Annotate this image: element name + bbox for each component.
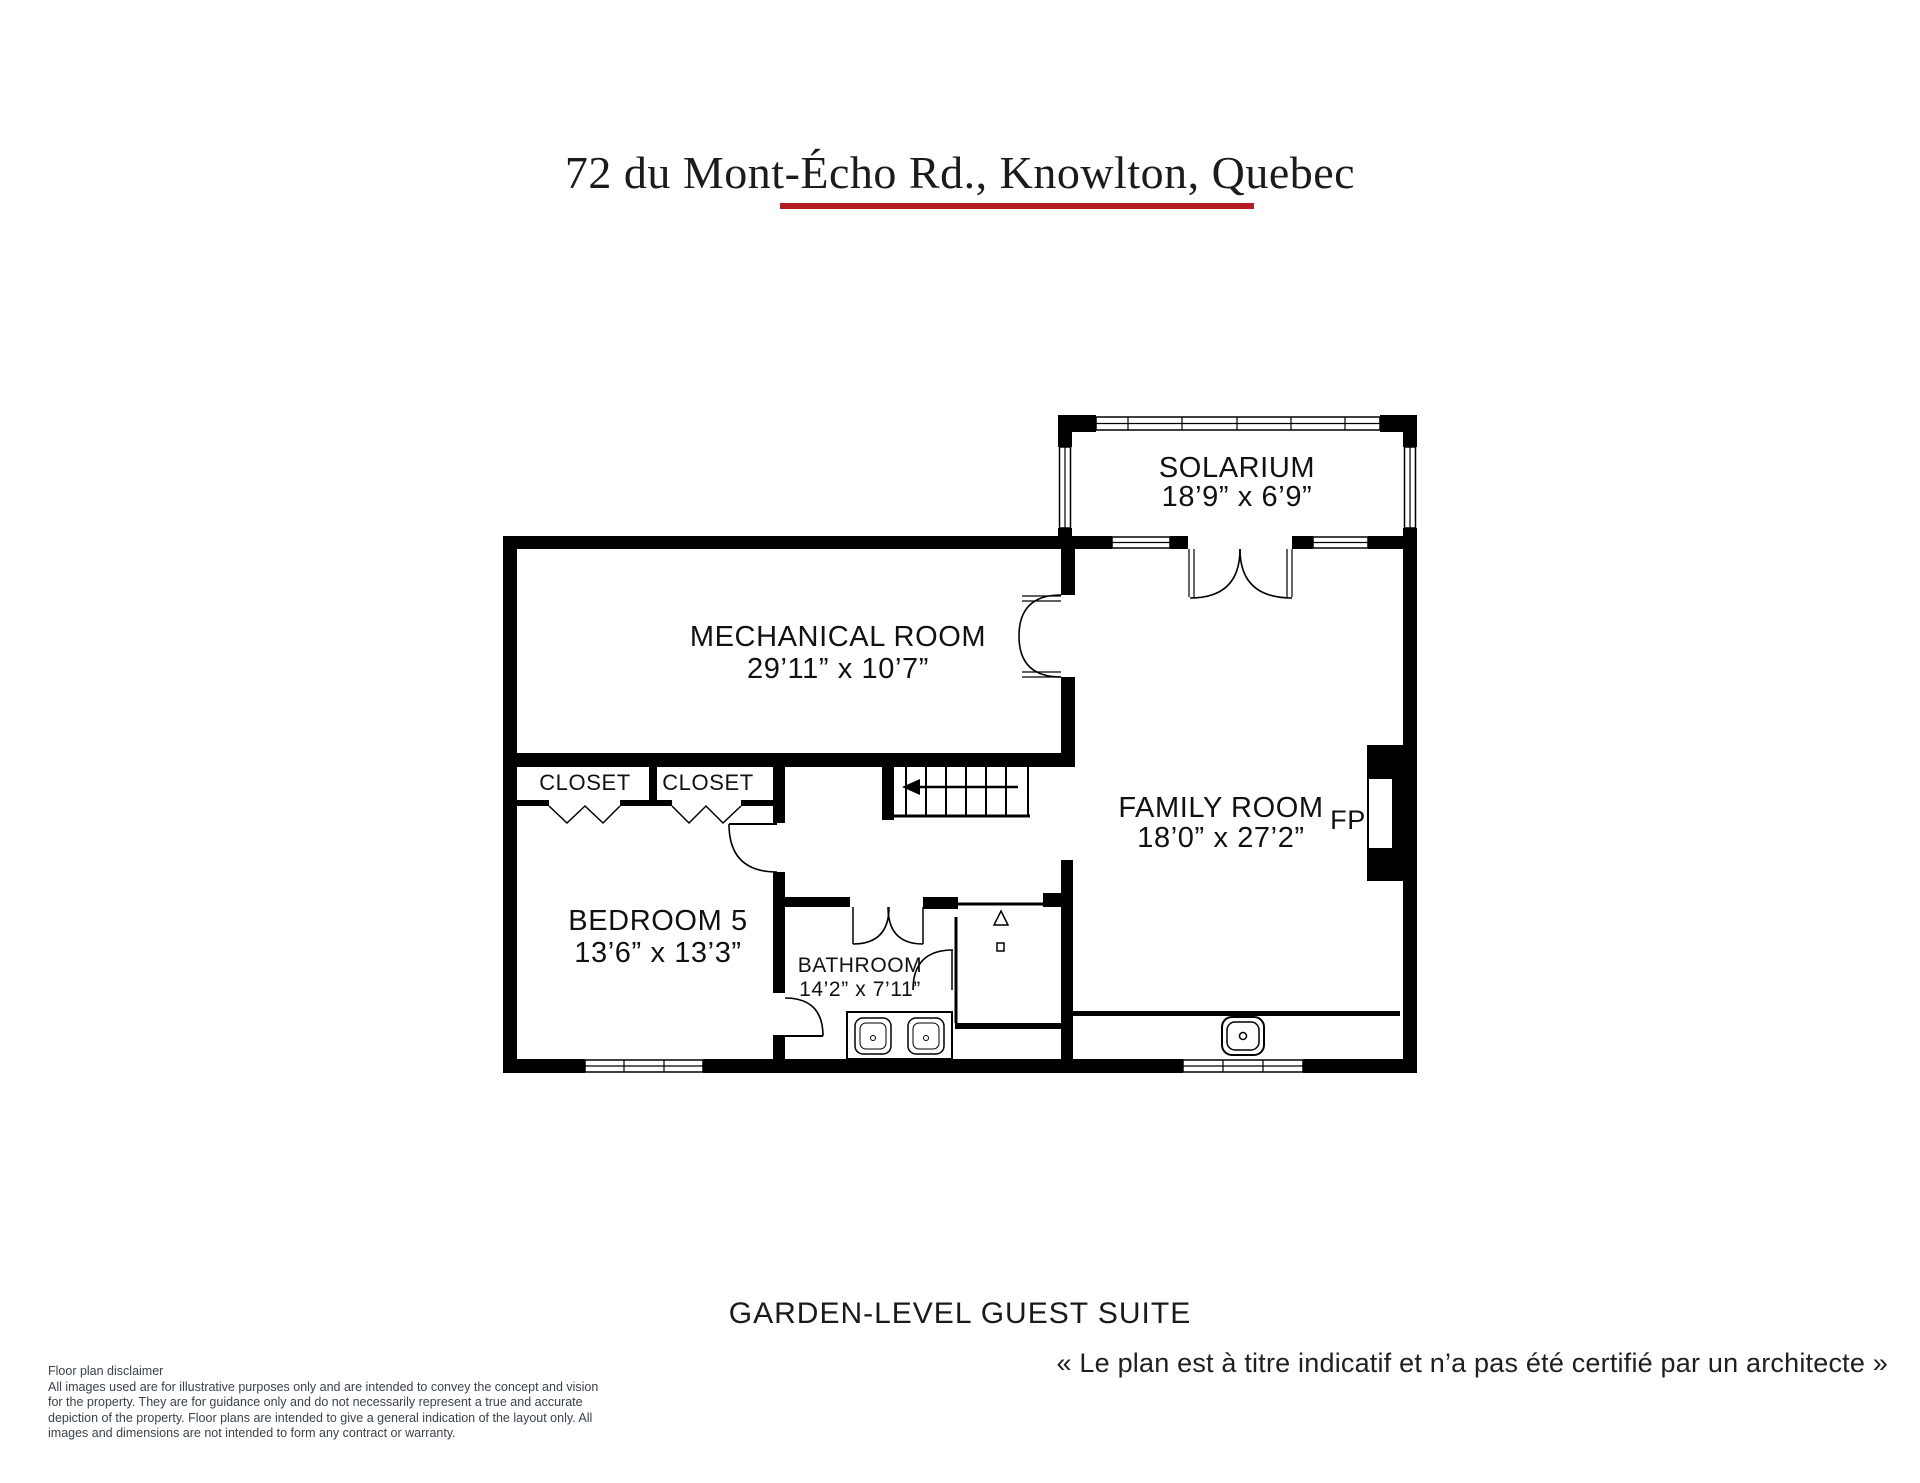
bathroom-vanity <box>847 1012 952 1059</box>
disclaimer-heading: Floor plan disclaimer <box>48 1364 598 1380</box>
room-label-closet-2: CLOSET <box>662 770 754 795</box>
floorplan-drawing: SOLARIUM 18’9” x 6’9” MECHANICAL ROOM 29… <box>0 0 1920 1483</box>
room-label-solarium: SOLARIUM <box>1159 452 1315 484</box>
room-dims-mechanical-room: 29’11” x 10’7” <box>747 653 929 685</box>
stairs-direction-arrow <box>902 779 1018 795</box>
room-dims-bedroom-5: 13’6” x 13’3” <box>574 937 741 969</box>
room-label-bedroom-5: BEDROOM 5 <box>568 905 747 937</box>
room-dims-solarium: 18’9” x 6’9” <box>1162 481 1313 513</box>
disclaimer-line: for the property. They are for guidance … <box>48 1395 598 1411</box>
room-labels: SOLARIUM 18’9” x 6’9” MECHANICAL ROOM 29… <box>539 452 1366 1001</box>
fireplace-label: FP <box>1330 805 1366 835</box>
room-label-mechanical-room: MECHANICAL ROOM <box>690 621 986 653</box>
floorplan-page: 72 du Mont-Écho Rd., Knowlton, Quebec <box>0 0 1920 1483</box>
disclaimer-line: depiction of the property. Floor plans a… <box>48 1411 598 1427</box>
bedroom-entry-door <box>729 824 777 872</box>
disclaimer-line: All images used are for illustrative pur… <box>48 1380 598 1396</box>
solarium-window-band <box>1096 417 1380 430</box>
family-room-window <box>1183 1060 1303 1072</box>
solarium-french-doors <box>1189 549 1292 598</box>
room-label-closet-1: CLOSET <box>539 770 631 795</box>
walls <box>503 415 1417 1073</box>
floor-plan-disclaimer: Floor plan disclaimer All images used ar… <box>48 1364 598 1442</box>
bedroom-window <box>585 1060 703 1072</box>
fireplace <box>1367 745 1403 881</box>
disclaimer-line: images and dimensions are not intended t… <box>48 1426 598 1442</box>
shower-symbols <box>994 911 1008 951</box>
french-disclaimer-caption: « Le plan est à titre indicatif et n’a p… <box>1057 1348 1888 1379</box>
room-dims-bathroom: 14’2” x 7’11” <box>799 978 921 1001</box>
room-dims-family-room: 18’0” x 27’2” <box>1137 822 1304 854</box>
bedroom-bathroom-door <box>785 998 823 1036</box>
closet-bifold-doors <box>549 806 741 823</box>
floor-level-label: GARDEN-LEVEL GUEST SUITE <box>0 1297 1920 1331</box>
room-label-bathroom: BATHROOM <box>798 954 923 977</box>
windows <box>585 417 1416 1072</box>
bathroom-double-doors <box>853 907 923 944</box>
room-label-family-room: FAMILY ROOM <box>1118 792 1323 824</box>
staircase <box>894 767 1030 816</box>
wet-bar-sink <box>1222 1017 1264 1055</box>
family-room-top-windows <box>1112 537 1368 548</box>
mechanical-room-french-doors <box>1019 595 1061 677</box>
